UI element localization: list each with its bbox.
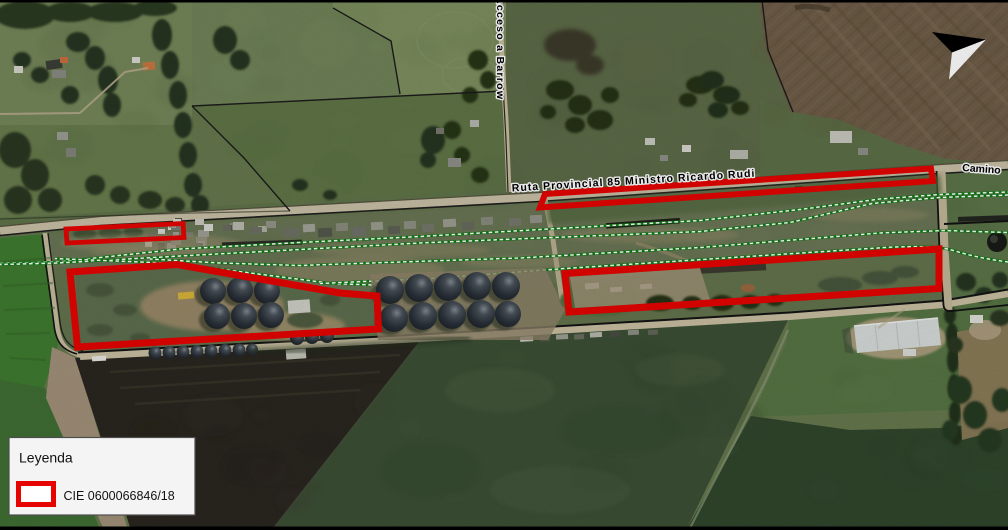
svg-text:Leyenda: Leyenda: [19, 450, 73, 466]
svg-text:CIE 0600066846/18: CIE 0600066846/18: [64, 489, 175, 503]
